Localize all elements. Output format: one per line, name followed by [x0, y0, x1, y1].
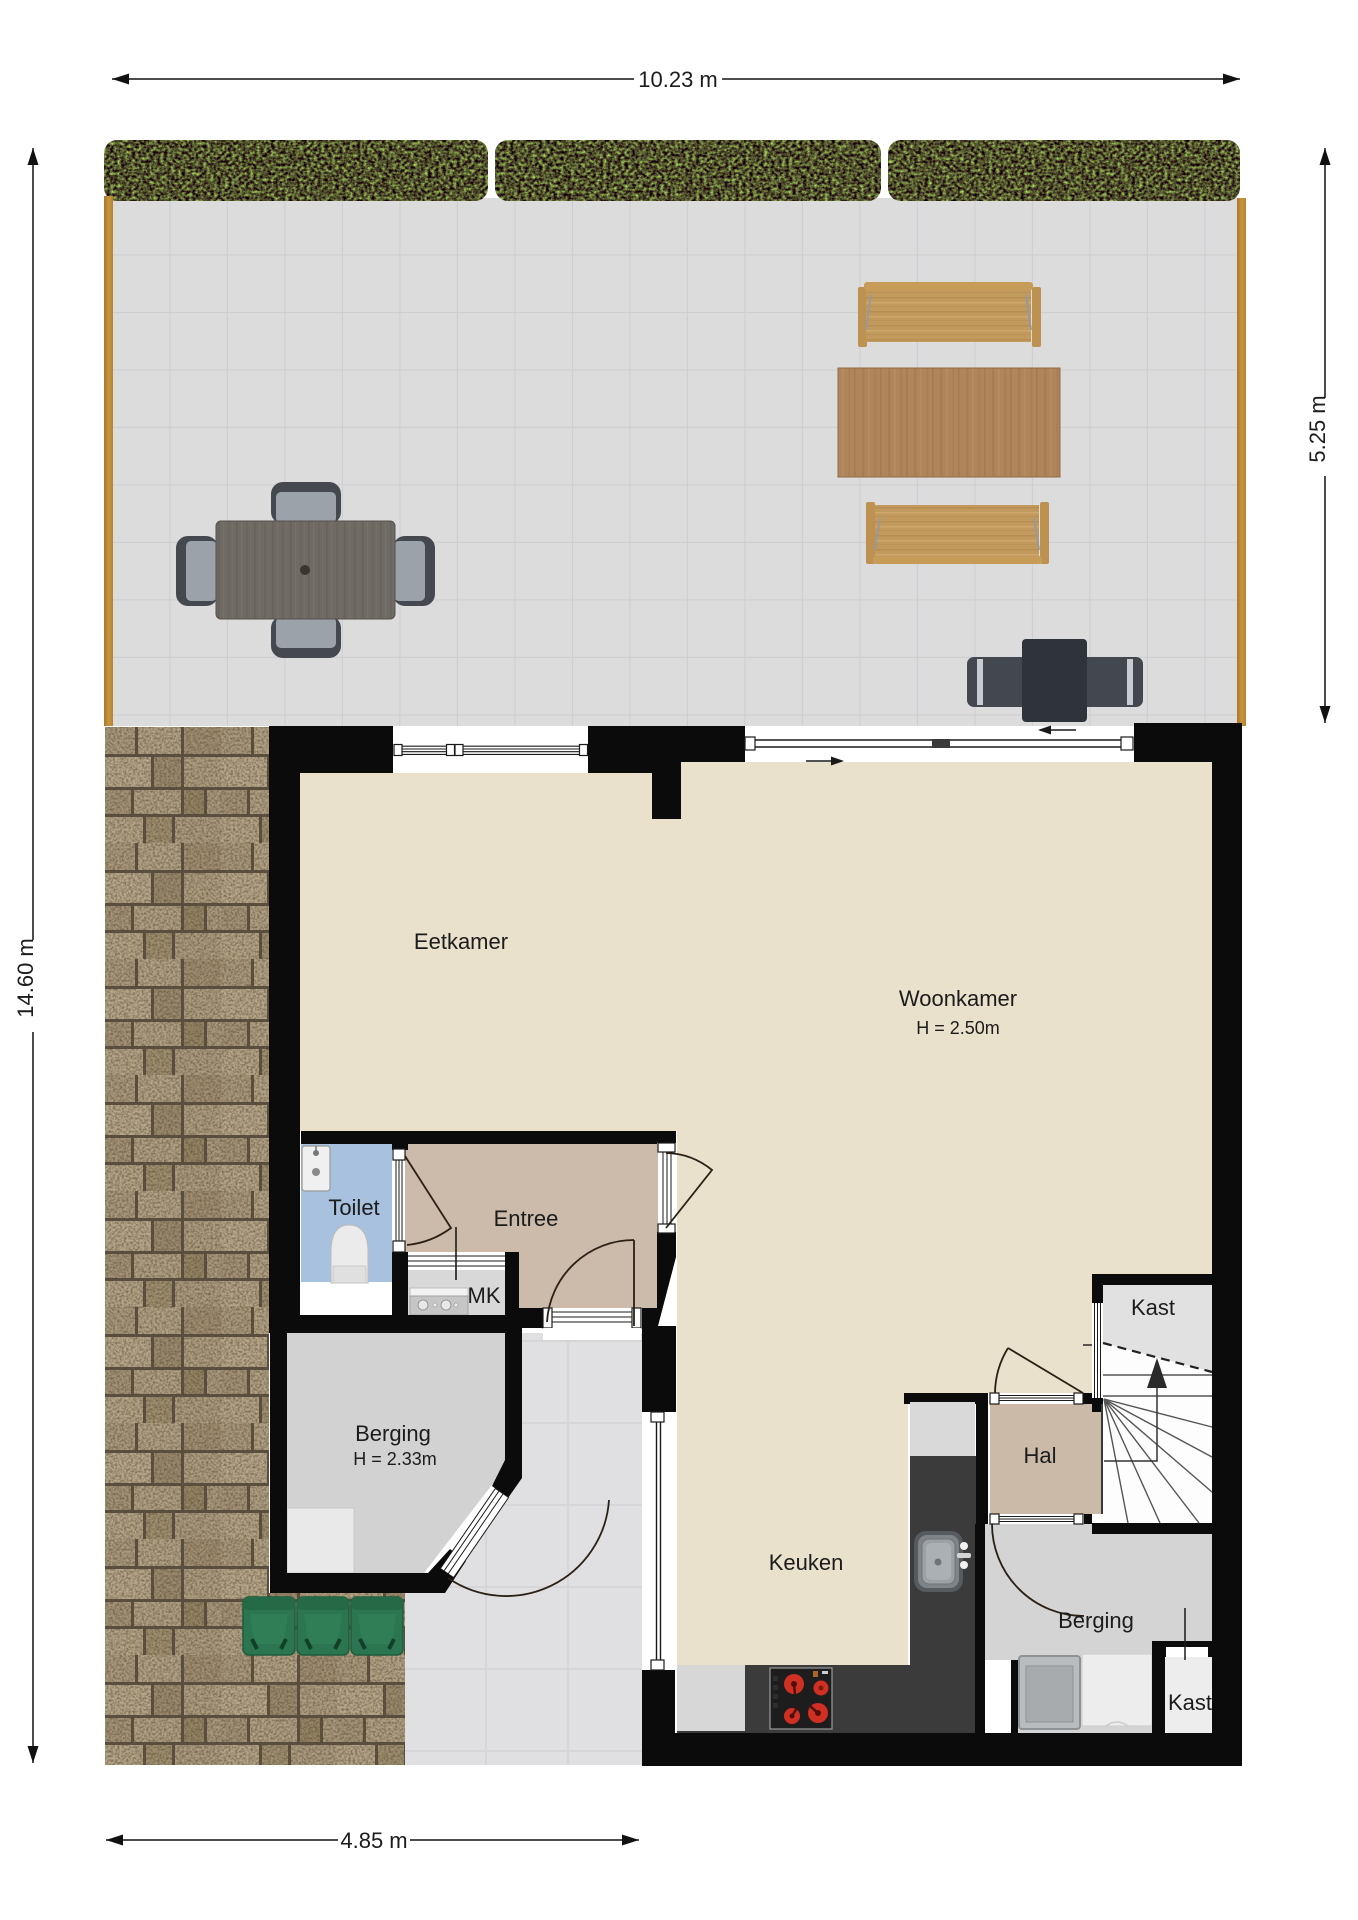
svg-text:4.85 m: 4.85 m: [340, 1828, 407, 1853]
svg-text:14.60 m: 14.60 m: [13, 938, 38, 1018]
svg-text:5.25 m: 5.25 m: [1305, 395, 1330, 462]
svg-text:Kast: Kast: [1168, 1690, 1212, 1715]
svg-text:Berging: Berging: [355, 1421, 431, 1446]
svg-text:Kast: Kast: [1131, 1295, 1175, 1320]
svg-text:Toilet: Toilet: [328, 1195, 379, 1220]
svg-text:Entree: Entree: [494, 1206, 559, 1231]
svg-text:Hal: Hal: [1023, 1443, 1056, 1468]
svg-text:Eetkamer: Eetkamer: [414, 929, 508, 954]
svg-text:MK: MK: [468, 1283, 501, 1308]
svg-text:10.23 m: 10.23 m: [638, 67, 718, 92]
svg-text:Woonkamer: Woonkamer: [899, 986, 1017, 1011]
svg-text:Berging: Berging: [1058, 1608, 1134, 1633]
svg-text:Keuken: Keuken: [769, 1550, 844, 1575]
svg-text:H = 2.50m: H = 2.50m: [916, 1018, 1000, 1038]
svg-text:H = 2.33m: H = 2.33m: [353, 1449, 437, 1469]
